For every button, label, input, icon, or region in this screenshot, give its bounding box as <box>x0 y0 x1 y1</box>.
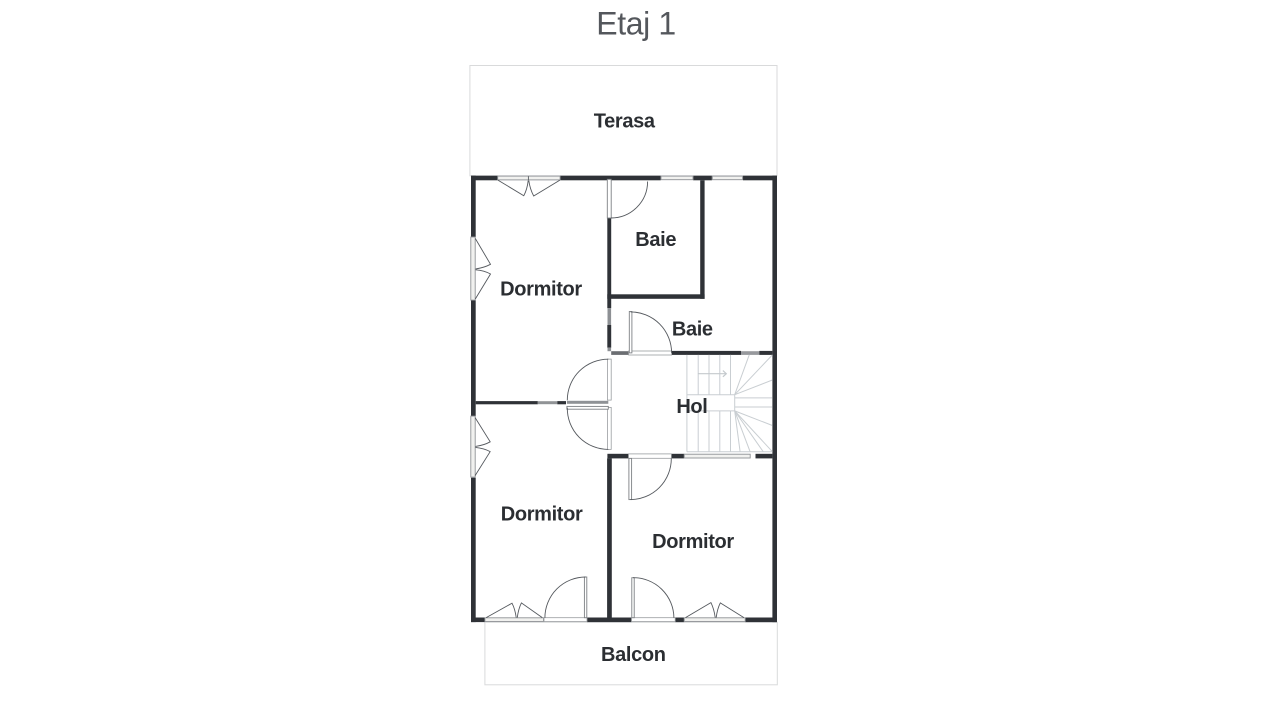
svg-text:Dormitor: Dormitor <box>500 279 582 301</box>
svg-text:Etaj 1: Etaj 1 <box>596 6 675 42</box>
svg-text:Baie: Baie <box>672 318 713 340</box>
svg-text:Dormitor: Dormitor <box>652 531 734 553</box>
svg-text:Terasa: Terasa <box>594 111 656 133</box>
svg-text:Baie: Baie <box>635 229 676 251</box>
svg-text:Dormitor: Dormitor <box>501 503 583 525</box>
svg-text:Balcon: Balcon <box>601 644 666 666</box>
svg-text:Hol: Hol <box>676 396 707 418</box>
